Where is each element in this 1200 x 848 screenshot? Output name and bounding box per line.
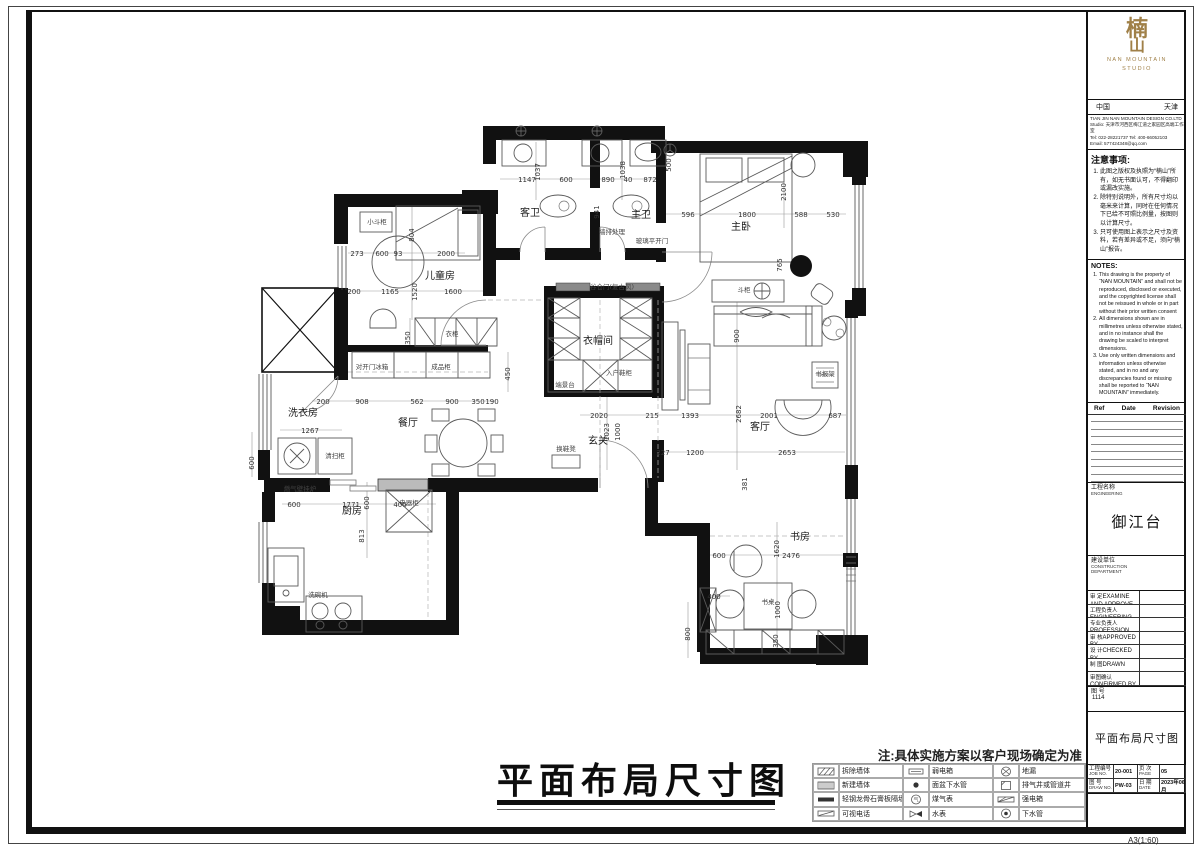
drawing-sheet: 客卫主卫主卧儿童房衣帽间玄关餐厅洗衣房厨房客厅书房小斗柜衣柜成品柜对开门冰箱端景…: [0, 0, 1200, 848]
attention-item: 除特别说明外，所有尺寸均以毫米来计算，同时在任何情况下已给不可照比例量，按图则以…: [1100, 194, 1183, 229]
room-label: 客卫: [520, 206, 540, 219]
dimension-label-vertical: 2682: [735, 405, 743, 423]
sign-label-cn: 审 核: [1090, 635, 1103, 641]
title-underline-thick: [497, 800, 775, 805]
dimension-label: 1771: [342, 501, 360, 509]
revision-empty-row: [1091, 422, 1183, 430]
title-underline-thin: [497, 809, 775, 810]
dimension-label-vertical: 350: [772, 634, 780, 647]
legend-table: 拆除墙体 弱电箱 地漏 新建墙体 面盆下水管 排气井或管道井 轻钢龙骨石膏板隔墙…: [812, 763, 1086, 822]
dimension-label: 687: [828, 412, 841, 420]
room-label: 客厅: [750, 420, 770, 433]
floor-plan-svg: 客卫主卫主卧儿童房衣帽间玄关餐厅洗衣房厨房客厅书房小斗柜衣柜成品柜对开门冰箱端景…: [0, 0, 1200, 848]
sign-value: [1140, 672, 1186, 686]
dimension-label: 1600: [444, 288, 462, 296]
regions: 中国 天津: [1088, 100, 1186, 115]
revision-col-date: Date: [1122, 405, 1136, 412]
weak-current-box-icon: [903, 764, 929, 778]
dimension-label: 215: [645, 412, 658, 420]
svg-text:气: 气: [913, 796, 918, 803]
revision-col-ref: Ref: [1094, 405, 1104, 412]
project-label-en: ENGINEERING: [1091, 492, 1186, 497]
dimension-label: 900: [445, 398, 458, 406]
dimension-label-vertical: 1038: [619, 161, 627, 179]
elevator-shaft: [262, 288, 338, 372]
legend-label: 可视电话: [839, 807, 903, 821]
plan-annotation: 书桌: [762, 597, 776, 606]
logo-char-shan: 山: [1088, 38, 1186, 54]
page-value: 05: [1160, 765, 1186, 779]
drawing-main-title: 平面布局尺寸图: [497, 752, 777, 804]
dimension-label: 908: [355, 398, 368, 406]
plan-annotation: 玻璃平开门: [636, 236, 669, 245]
gas-meter-icon: 气: [903, 792, 929, 806]
dimension-label: 1267: [301, 427, 319, 435]
room-label: 餐厅: [398, 416, 418, 429]
room-label: 书房: [790, 530, 810, 543]
revision-table: Ref Date Revision: [1088, 403, 1186, 484]
sign-label-cn: 审 定: [1090, 594, 1103, 600]
dimension-label: 200: [316, 398, 329, 406]
dimension-label-vertical: 2100: [780, 183, 788, 201]
dimension-label: 350: [471, 398, 484, 406]
dimension-label: 2020: [590, 412, 608, 420]
dimension-label: 190: [485, 398, 498, 406]
dimension-label-vertical: 600: [248, 456, 256, 469]
plan-annotation: 小斗柜: [367, 217, 387, 226]
sign-value: [1140, 605, 1186, 619]
revision-empty-row: [1091, 452, 1183, 460]
legend-label: 轻钢龙骨石膏板隔墙: [839, 792, 903, 806]
title-block: 楠 山 NAN MOUNTAIN STUDIO 中国 天津 TIAN JIN N…: [1088, 12, 1186, 828]
revision-empty-row: [1091, 415, 1183, 423]
site-confirmation-note: 注:具体实施方案以客户现场确定为准: [870, 745, 1082, 764]
plan-annotation: 端景台: [555, 380, 575, 389]
dimension-label: 1165: [381, 288, 399, 296]
dimension-label: 1800: [738, 211, 756, 219]
dimension-label: 2476: [782, 552, 800, 560]
exhaust-shaft-icon: [993, 778, 1019, 792]
room-label: 主卧: [731, 220, 751, 233]
dimension-label-vertical: 765: [776, 258, 784, 271]
bottom-info-table: 工程编号JOB NO. 20-001 页 次PAGE 05 图 号DRAW NO…: [1088, 765, 1186, 794]
walls: [258, 126, 868, 665]
room-label: 衣帽间: [583, 334, 613, 347]
region-country: 中国: [1096, 102, 1110, 112]
sign-value: [1140, 591, 1186, 605]
draw-no-value: PW-03: [1114, 779, 1138, 793]
dimension-label-vertical: 1620: [773, 540, 781, 558]
drain-pipe-icon: [993, 807, 1019, 821]
dimension-label: 1200: [686, 449, 704, 457]
plan-annotation: 衣柜: [446, 329, 460, 338]
dimension-label: 530: [826, 211, 839, 219]
job-no-label-en: JOB NO.: [1089, 772, 1112, 777]
revision-col-revision: Revision: [1153, 405, 1180, 412]
plan-annotation: 对开门冰箱: [356, 362, 389, 371]
revision-empty-row: [1091, 475, 1183, 483]
legend-label: 水表: [929, 807, 993, 821]
serial-cell: 图 号 1114: [1088, 687, 1186, 712]
dimension-label-vertical: 1000: [774, 601, 782, 619]
notes-item: This drawing is the property of “NAN MOU…: [1099, 272, 1183, 316]
attention-item: 此图之版权及执照为“楠山”所有，如无书面认可，不得翻印或漏改实施。: [1100, 168, 1183, 194]
legend-label: 地漏: [1019, 764, 1085, 778]
dimension-label: 872: [643, 176, 656, 184]
water-meter-icon: [903, 807, 929, 821]
video-phone-icon: [813, 807, 839, 821]
attention-item: 只可使用图上表示之尺寸及资料，若有差异或不足，须向“楠山”报告。: [1100, 229, 1183, 255]
project-name-cell: 工程名称 ENGINEERING 御江台: [1088, 483, 1186, 556]
room-label: 儿童房: [425, 269, 455, 282]
sign-label-cn: 专业负责人: [1090, 621, 1118, 627]
legend-label: 排气井或管道井: [1019, 778, 1085, 792]
plan-annotation: 墙排处理: [599, 227, 626, 236]
revision-empty-row: [1091, 460, 1183, 468]
dimension-label-vertical: 1520: [411, 283, 419, 301]
dimension-label-vertical: 1037: [534, 163, 542, 181]
plan-annotation: 谷仓门(复古风): [590, 282, 634, 291]
legend-label: 面盆下水管: [929, 778, 993, 792]
plan-annotation: 清扫柜: [325, 451, 345, 460]
dimension-label: 2653: [778, 449, 796, 457]
demolish-wall-icon: [813, 764, 839, 778]
construction-cell: 建设单位 CONSTRUCTION DEPARTMENT: [1088, 556, 1186, 591]
new-wall-icon: [813, 778, 839, 792]
dimension-label-vertical: 350: [404, 331, 412, 344]
dimension-label: 400: [393, 501, 406, 509]
dimension-label: 400: [707, 593, 720, 601]
sign-value: [1140, 618, 1186, 632]
sign-value: [1140, 645, 1186, 659]
revision-empty-row: [1091, 430, 1183, 438]
region-city: 天津: [1164, 102, 1178, 112]
draw-no-label-en: DRAW NO.: [1089, 786, 1112, 791]
construction-label-en2: DEPARTMENT: [1091, 570, 1186, 575]
notes-item: Use only written dimensions and informat…: [1099, 353, 1183, 397]
dimension-label: 600: [712, 552, 725, 560]
notes-heading: NOTES:: [1091, 263, 1183, 270]
dimension-label-vertical: 1000: [614, 423, 622, 441]
legend-label: 煤气表: [929, 792, 993, 806]
room-label: 洗衣房: [288, 406, 318, 419]
dimension-label: 562: [410, 398, 423, 406]
legend-label: 强电箱: [1019, 792, 1085, 806]
steel-keel-partition-icon: [813, 792, 839, 806]
dimension-label: 588: [794, 211, 807, 219]
sign-label-en: DRAWN: [1103, 662, 1125, 668]
date-value: 2023年06月: [1160, 779, 1186, 793]
sign-label-cn: 审图确认: [1090, 675, 1112, 681]
sign-value: [1140, 659, 1186, 673]
revision-empty-row: [1091, 445, 1183, 453]
dimension-label-vertical: 813: [358, 529, 366, 542]
attention-heading: 注意事项:: [1091, 153, 1183, 166]
notes-item: All dimensions shown are in millimetres …: [1099, 316, 1183, 353]
dimension-label: 600: [287, 501, 300, 509]
sign-label-cn: 制 图: [1090, 662, 1103, 668]
project-name: 御江台: [1088, 511, 1186, 532]
dimension-label: 596: [681, 211, 695, 219]
serial-label: 图 号: [1091, 689, 1105, 695]
strong-current-box-icon: [993, 792, 1019, 806]
plan-annotation: 入户鞋柜: [606, 368, 633, 377]
legend-label: 新建墙体: [839, 778, 903, 792]
dimension-label: 200: [347, 288, 360, 296]
dimension-label-vertical: 450: [504, 367, 512, 380]
dimension-label-vertical: 900: [733, 329, 741, 342]
titleblock-drawing-title: 平面布局尺寸图: [1088, 712, 1186, 765]
revision-empty-row: [1091, 437, 1183, 445]
revision-empty-row: [1091, 467, 1183, 475]
job-no-value: 20-001: [1114, 765, 1138, 779]
dimension-label-vertical: 500: [665, 158, 673, 171]
dimension-label: 600: [559, 176, 572, 184]
sign-label-en: CONFIRMED BY: [1090, 682, 1136, 686]
room-label: 主卫: [631, 209, 651, 221]
company-line: Studio: 天津市河西区梅江道之家园区高端工作室: [1090, 122, 1184, 134]
company-line: Email: 577424348@qq.com: [1090, 141, 1184, 147]
date-label-en: DATE: [1139, 786, 1158, 791]
dimension-label: 2001: [760, 412, 778, 420]
dimension-label: 2000: [437, 250, 455, 258]
dimension-label: 93: [394, 250, 403, 258]
dimension-label-vertical: 381: [741, 477, 749, 490]
basin-drain-icon: [903, 778, 929, 792]
dimension-label: 273: [350, 250, 363, 258]
sign-label-cn: 设 计: [1090, 648, 1103, 654]
legend-label: 下水管: [1019, 807, 1085, 821]
plan-annotation: 燃气壁挂炉: [284, 484, 317, 493]
floor-drain-icon: [993, 764, 1019, 778]
signature-table: 审 定EXAMINE AND APPROVE 工程负责人ENGINEERING …: [1088, 591, 1186, 687]
paper-scale-note: A3(1:60): [1128, 836, 1159, 845]
plan-annotation: 斗柜: [738, 285, 752, 294]
sign-value: [1140, 632, 1186, 646]
dimension-label-vertical: 800: [684, 627, 692, 640]
dimension-label-vertical: 1023: [603, 423, 611, 441]
dimension-label: 1393: [681, 412, 699, 420]
plan-annotation: 成品柜: [431, 362, 451, 371]
dimension-label-vertical: 600: [363, 496, 371, 509]
logo-brand-line2: STUDIO: [1088, 66, 1186, 72]
serial-value: 1114: [1088, 695, 1186, 701]
plan-annotation: 书报架: [815, 369, 835, 378]
dimension-label: 600: [375, 250, 388, 258]
logo-brand-line1: NAN MOUNTAIN: [1088, 57, 1186, 63]
legend-label: 拆除墙体: [839, 764, 903, 778]
dimension-label: 890: [601, 176, 614, 184]
dimension-label-vertical: 941: [593, 205, 601, 218]
dimension-label-vertical: 804: [408, 228, 416, 242]
attention-notes-cn: 注意事项: 此图之版权及执照为“楠山”所有，如无书面认可，不得翻印或漏改实施。 …: [1088, 150, 1186, 260]
plan-annotation: 换鞋凳: [556, 444, 576, 453]
plan-annotation: 洗碗机: [308, 590, 328, 599]
notes-en: NOTES: This drawing is the property of “…: [1088, 260, 1186, 403]
page-label-en: PAGE: [1139, 772, 1158, 777]
logo: 楠 山 NAN MOUNTAIN STUDIO: [1088, 12, 1186, 100]
company-info: TIAN JIN NAN MOUNTAIN DESIGN CO.LTD Stud…: [1088, 115, 1186, 150]
dimension-label: 227: [656, 449, 669, 457]
sign-label-cn: 工程负责人: [1090, 608, 1118, 614]
legend-label: 弱电箱: [929, 764, 993, 778]
